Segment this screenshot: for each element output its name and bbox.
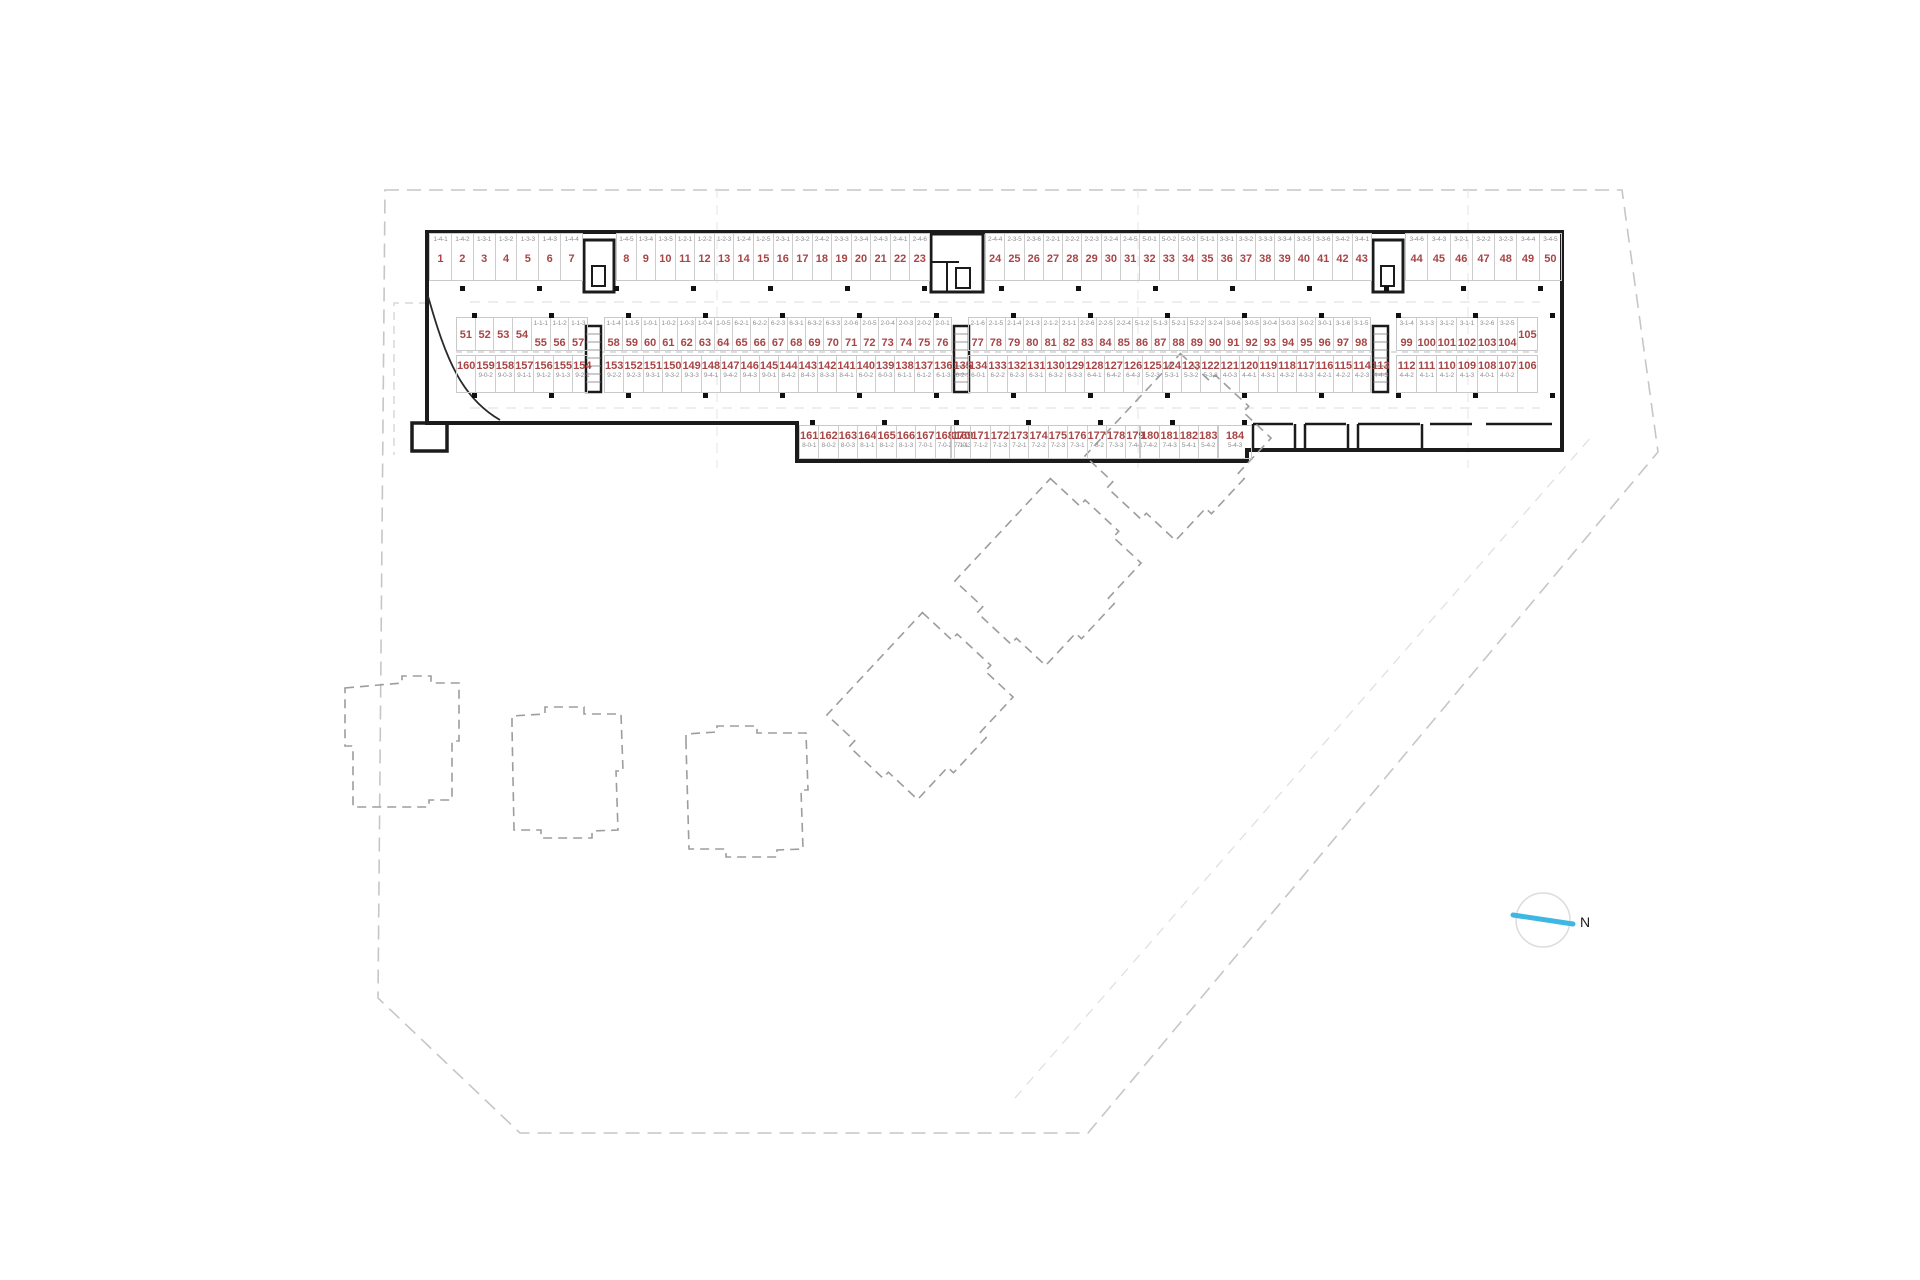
stall-code: 2-0-3 xyxy=(899,320,913,328)
parking-stall: 6-2-367 xyxy=(768,318,786,350)
parking-stall: 2-3-116 xyxy=(773,234,793,280)
parking-stall: 6-3-168 xyxy=(787,318,805,350)
future-building-5 xyxy=(949,473,1152,677)
stall-number: 95 xyxy=(1300,337,1312,349)
stall-code: 2-0-1 xyxy=(935,320,949,328)
parking-stall: 1747-2-2 xyxy=(1028,426,1047,458)
parking-stall: 2-2-683 xyxy=(1078,318,1096,350)
stall-code: 1-3-3 xyxy=(521,236,535,244)
stall-number: 178 xyxy=(1107,430,1125,442)
stall-number: 114 xyxy=(1353,360,1371,372)
stall-number: 112 xyxy=(1398,360,1416,372)
stall-code: 8-1-2 xyxy=(880,442,894,450)
parking-stall: 5-1-387 xyxy=(1151,318,1169,350)
row_top-segment: 1-4-111-4-221-3-131-3-241-3-351-4-361-4-… xyxy=(429,233,583,281)
stall-code: 8-1-1 xyxy=(860,442,874,450)
stall-code: 5-4-1 xyxy=(1182,442,1196,450)
stall-code: 6-2-2 xyxy=(753,320,767,328)
row_bottom-segment: 1807-4-21817-4-31825-4-11835-4-2 xyxy=(1140,425,1218,459)
stall-code: 5-0-3 xyxy=(1181,236,1195,244)
parking-stall: 1469-4-3 xyxy=(740,356,759,392)
stall-number: 76 xyxy=(936,337,948,349)
parking-stall: 2-3-626 xyxy=(1024,234,1043,280)
parking-stall: 1529-2-3 xyxy=(623,356,642,392)
stall-code: 9-2-3 xyxy=(626,372,640,380)
stall-number: 94 xyxy=(1282,337,1294,349)
parking-stall: 2-3-525 xyxy=(1004,234,1023,280)
stall-code: 5-1-1 xyxy=(1200,236,1214,244)
parking-stall: 1164-2-1 xyxy=(1315,356,1334,392)
parking-stall: 1114-1-1 xyxy=(1416,356,1436,392)
stall-number: 68 xyxy=(790,337,802,349)
stall-number: 34 xyxy=(1182,253,1194,265)
stall-number: 150 xyxy=(663,360,681,372)
stall-number: 48 xyxy=(1500,253,1512,265)
stall-number: 5 xyxy=(525,253,531,265)
column-marker xyxy=(1088,393,1093,398)
stall-code: 3-3-4 xyxy=(1278,236,1292,244)
parking-stall: 1376-1-2 xyxy=(914,356,933,392)
stall-number: 22 xyxy=(894,253,906,265)
stall-code: 1-1-1 xyxy=(534,320,548,328)
stall-code: 1-2-2 xyxy=(697,236,711,244)
stall-number: 1 xyxy=(437,253,443,265)
stall-code: 9-4-1 xyxy=(704,372,718,380)
stall-number: 171 xyxy=(971,430,989,442)
stall-code: 3-2-2 xyxy=(1476,236,1490,244)
row_lower_middle-segment: 1601599-0-21589-0-31579-1-11569-1-21559-… xyxy=(456,355,588,393)
stall-code: 3-0-4 xyxy=(1263,320,1277,328)
parking-stall: 1845-4-3 xyxy=(1219,426,1251,458)
parking-stall: 1-4-11 xyxy=(430,234,451,280)
stall-number: 66 xyxy=(754,337,766,349)
stall-number: 155 xyxy=(554,360,572,372)
stall-number: 35 xyxy=(1201,253,1213,265)
parking-stall: 1428-3-3 xyxy=(817,356,836,392)
stall-code: 1-1-2 xyxy=(552,320,566,328)
stall-code: 3-2-1 xyxy=(1454,236,1468,244)
stall-number: 117 xyxy=(1297,360,1315,372)
stall-code: 2-1-2 xyxy=(1044,320,1058,328)
parking-stall: 2-1-380 xyxy=(1023,318,1041,350)
parking-stall: 2-1-182 xyxy=(1059,318,1077,350)
column-marker xyxy=(1473,393,1478,398)
stall-number: 123 xyxy=(1182,360,1200,372)
parking-stall: 1124-4-2 xyxy=(1397,356,1416,392)
stall-number: 14 xyxy=(738,253,750,265)
column-marker xyxy=(857,393,862,398)
stall-number: 132 xyxy=(1008,360,1026,372)
stall-code: 9-4-3 xyxy=(743,372,757,380)
parking-stall: 1-1-559 xyxy=(622,318,640,350)
stall-code: 3-2-3 xyxy=(1499,236,1513,244)
stall-code: 6-3-2 xyxy=(1049,372,1063,380)
column-marker xyxy=(768,286,773,291)
stall-number: 52 xyxy=(478,329,490,341)
column-marker xyxy=(1165,393,1170,398)
column-marker xyxy=(780,313,785,318)
stall-number: 49 xyxy=(1522,253,1534,265)
stall-code: 1-1-5 xyxy=(625,320,639,328)
stall-number: 146 xyxy=(741,360,759,372)
stall-number: 84 xyxy=(1099,337,1111,349)
column-marker xyxy=(1242,393,1247,398)
parking-stall: 3-2-348 xyxy=(1494,234,1516,280)
parking-stall: 2-4-321 xyxy=(870,234,890,280)
stall-code: 2-4-5 xyxy=(1123,236,1137,244)
stall-number: 93 xyxy=(1264,337,1276,349)
parking-stall: 1346-0-1 xyxy=(969,356,987,392)
column-marker xyxy=(1396,313,1401,318)
stall-code: 2-0-2 xyxy=(917,320,931,328)
stall-code: 1-1-3 xyxy=(571,320,585,328)
column-marker xyxy=(1319,313,1324,318)
stall-code: 3-0-5 xyxy=(1245,320,1259,328)
future-building-2 xyxy=(512,707,623,838)
column-marker xyxy=(845,286,850,291)
stall-code: 1-3-2 xyxy=(499,236,513,244)
parking-stall: 1549-2-1 xyxy=(572,356,591,392)
stall-number: 180 xyxy=(1141,430,1159,442)
setback-line xyxy=(1015,436,1592,1098)
parking-stall: 1326-2-3 xyxy=(1007,356,1026,392)
parking-stall: 1825-4-1 xyxy=(1179,426,1198,458)
stall-number: 144 xyxy=(779,360,797,372)
parking-stall: 5-1-135 xyxy=(1197,234,1216,280)
parking-stall: 2-2-584 xyxy=(1096,318,1114,350)
parking-stall: 1-4-22 xyxy=(451,234,473,280)
column-marker xyxy=(460,286,465,291)
column-marker xyxy=(537,286,542,291)
stall-number: 51 xyxy=(460,329,472,341)
stall-number: 147 xyxy=(721,360,739,372)
stall-number: 87 xyxy=(1154,337,1166,349)
stall-code: 2-4-2 xyxy=(815,236,829,244)
stall-number: 163 xyxy=(839,430,857,442)
stall-code: 4-0-2 xyxy=(1500,372,1514,380)
parking-stall: 1204-4-1 xyxy=(1239,356,1258,392)
parking-stall: 2-2-329 xyxy=(1081,234,1100,280)
parking-stall: 1336-2-2 xyxy=(987,356,1006,392)
parking-stall: 3-1-3100 xyxy=(1416,318,1436,350)
stall-number: 20 xyxy=(855,253,867,265)
stall-number: 177 xyxy=(1088,430,1106,442)
parking-stall: 1084-0-1 xyxy=(1477,356,1497,392)
future-building-4 xyxy=(821,607,1024,811)
stall-code: 7-2-1 xyxy=(1012,442,1026,450)
column-marker xyxy=(1550,393,1555,398)
stall-number: 130 xyxy=(1046,360,1064,372)
stall-number: 118 xyxy=(1278,360,1296,372)
parking-stall: 3-0-691 xyxy=(1224,318,1242,350)
stall-code: 3-2-6 xyxy=(1480,320,1494,328)
column-marker xyxy=(999,286,1004,291)
stall-number: 83 xyxy=(1081,337,1093,349)
column-marker xyxy=(922,286,927,291)
stall-code: 8-3-3 xyxy=(820,372,834,380)
parking-stall: 3-4-345 xyxy=(1427,234,1449,280)
parking-stall: 1569-1-2 xyxy=(533,356,552,392)
parking-stall: 5-2-188 xyxy=(1169,318,1187,350)
stall-code: 3-3-2 xyxy=(1239,236,1253,244)
stall-code: 7-3-3 xyxy=(1109,442,1123,450)
stall-number: 149 xyxy=(682,360,700,372)
stall-number: 134 xyxy=(969,360,987,372)
column-marker xyxy=(1165,313,1170,318)
parking-stall: 3-1-1102 xyxy=(1456,318,1476,350)
stall-code: 3-3-5 xyxy=(1297,236,1311,244)
stall-number: 98 xyxy=(1355,337,1367,349)
column-marker xyxy=(1230,286,1235,291)
stall-number: 15 xyxy=(757,253,769,265)
stall-code: 3-0-3 xyxy=(1281,320,1295,328)
stall-code: 9-1-1 xyxy=(517,372,531,380)
stall-code: 8-0-3 xyxy=(841,442,855,450)
stall-number: 67 xyxy=(772,337,784,349)
stall-code: 3-1-6 xyxy=(1336,320,1350,328)
parking-stall: 106 xyxy=(1517,356,1537,392)
stall-number: 102 xyxy=(1458,337,1476,349)
parking-stall: 1-0-564 xyxy=(714,318,732,350)
parking-stall: 1074-0-2 xyxy=(1497,356,1517,392)
parking-stall: 1-3-13 xyxy=(473,234,495,280)
parking-stall: 1707-1-1 xyxy=(952,426,970,458)
stall-code: 2-2-4 xyxy=(1104,236,1118,244)
stall-code: 8-4-2 xyxy=(781,372,795,380)
stall-number: 3 xyxy=(481,253,487,265)
parking-stall: 1225-3-3 xyxy=(1200,356,1219,392)
stall-code: 2-4-3 xyxy=(874,236,888,244)
parking-stall: 1579-1-1 xyxy=(514,356,533,392)
stall-number: 110 xyxy=(1438,360,1456,372)
column-marker xyxy=(549,393,554,398)
stall-number: 116 xyxy=(1316,360,1334,372)
stall-number: 138 xyxy=(895,360,913,372)
parking-stall: 1-2-515 xyxy=(753,234,773,280)
parking-stall: 1-3-49 xyxy=(636,234,656,280)
column-marker xyxy=(472,313,477,318)
stall-number: 12 xyxy=(698,253,710,265)
stall-code: 6-3-2 xyxy=(807,320,821,328)
north-label: N xyxy=(1580,914,1590,930)
stall-number: 115 xyxy=(1334,360,1352,372)
stall-number: 77 xyxy=(972,337,984,349)
parking-stall: 1737-2-1 xyxy=(1009,426,1028,458)
parking-stall: 1316-3-1 xyxy=(1026,356,1045,392)
parking-stall: 2-2-485 xyxy=(1114,318,1132,350)
stall-code: 2-3-6 xyxy=(1027,236,1041,244)
parking-stall: 1757-2-3 xyxy=(1048,426,1067,458)
stall-code: 6-4-2 xyxy=(1107,372,1121,380)
stall-code: 6-1-1 xyxy=(897,372,911,380)
stall-code: 9-3-1 xyxy=(646,372,660,380)
parking-stall: 1104-1-2 xyxy=(1436,356,1456,392)
stall-code: 2-1-4 xyxy=(1007,320,1021,328)
stall-number: 16 xyxy=(777,253,789,265)
stall-number: 57 xyxy=(572,337,584,349)
stall-code: 2-2-2 xyxy=(1065,236,1079,244)
column-marker xyxy=(1384,286,1389,291)
stall-number: 64 xyxy=(717,337,729,349)
stall-code: 5-2-3 xyxy=(1145,372,1159,380)
column-marker xyxy=(1098,420,1103,425)
stall-number: 27 xyxy=(1047,253,1059,265)
parking-stall: 1668-1-3 xyxy=(896,426,915,458)
site-plan-linework: N xyxy=(0,0,1920,1280)
parking-stall: 1134-4-3 xyxy=(1371,356,1390,392)
parking-stall: 3-2-146 xyxy=(1450,234,1472,280)
parking-stall: 1245-3-1 xyxy=(1162,356,1181,392)
stall-number: 69 xyxy=(808,337,820,349)
parking-stall: 3-4-644 xyxy=(1406,234,1427,280)
stall-number: 10 xyxy=(659,253,671,265)
stall-number: 158 xyxy=(496,360,514,372)
stall-number: 79 xyxy=(1008,337,1020,349)
parking-stall: 1628-0-2 xyxy=(818,426,837,458)
stall-number: 39 xyxy=(1278,253,1290,265)
parking-stall: 1266-4-3 xyxy=(1123,356,1142,392)
stall-number: 82 xyxy=(1063,337,1075,349)
parking-stall: 1406-0-2 xyxy=(856,356,875,392)
stall-number: 139 xyxy=(876,360,894,372)
stall-number: 167 xyxy=(916,430,934,442)
parking-stall: 1-0-160 xyxy=(641,318,659,350)
column-marker xyxy=(1461,286,1466,291)
stall-code: 7-0-1 xyxy=(918,442,932,450)
parking-stall: 6-3-269 xyxy=(805,318,823,350)
stall-code: 3-4-6 xyxy=(1410,236,1424,244)
stall-number: 173 xyxy=(1010,430,1028,442)
column-marker xyxy=(1319,393,1324,398)
stall-code: 2-1-6 xyxy=(971,320,985,328)
stall-code: 6-3-1 xyxy=(789,320,803,328)
parking-stall: 2-2-127 xyxy=(1043,234,1062,280)
stall-code: 3-0-1 xyxy=(1318,320,1332,328)
stall-number: 45 xyxy=(1433,253,1445,265)
stall-code: 1-0-2 xyxy=(661,320,675,328)
parking-stall: 1-2-212 xyxy=(694,234,714,280)
stall-code: 1-1-4 xyxy=(607,320,621,328)
parking-stall: 1-4-58 xyxy=(617,234,636,280)
row_top-segment: 1-4-581-3-491-3-5101-2-1111-2-2121-2-313… xyxy=(616,233,930,281)
stall-number: 181 xyxy=(1160,430,1178,442)
stall-code: 8-4-1 xyxy=(839,372,853,380)
stall-code: 1-2-3 xyxy=(717,236,731,244)
column-marker xyxy=(1242,420,1247,425)
stall-code: 5-4-3 xyxy=(1228,442,1242,450)
parking-stall: 1174-3-3 xyxy=(1296,356,1315,392)
column-marker xyxy=(1153,286,1158,291)
stall-number: 73 xyxy=(881,337,893,349)
stall-number: 122 xyxy=(1201,360,1219,372)
stall-number: 153 xyxy=(605,360,623,372)
stall-code: 1-4-3 xyxy=(543,236,557,244)
parking-stall: 2-4-122 xyxy=(890,234,910,280)
row_top-segment: 2-4-4242-3-5252-3-6262-2-1272-2-2282-2-3… xyxy=(985,233,1372,281)
parking-stall: 1-1-357 xyxy=(568,318,587,350)
parking-stall: 1767-3-1 xyxy=(1067,426,1086,458)
stall-code: 2-2-1 xyxy=(1046,236,1060,244)
stall-code: 2-4-6 xyxy=(913,236,927,244)
column-marker xyxy=(1170,420,1175,425)
parking-stall: 2-1-677 xyxy=(969,318,986,350)
stall-code: 7-1-3 xyxy=(993,442,1007,450)
stall-code: 3-0-6 xyxy=(1226,320,1240,328)
stall-number: 26 xyxy=(1028,253,1040,265)
column-marker xyxy=(954,420,959,425)
stall-number: 62 xyxy=(681,337,693,349)
stall-code: 1-0-3 xyxy=(680,320,694,328)
stall-number: 32 xyxy=(1143,253,1155,265)
stall-code: 4-4-1 xyxy=(1242,372,1256,380)
stall-code: 4-3-3 xyxy=(1299,372,1313,380)
parking-stall: 3-0-196 xyxy=(1315,318,1333,350)
stall-code: 3-1-5 xyxy=(1354,320,1368,328)
stall-code: 3-1-4 xyxy=(1399,320,1413,328)
stall-code: 2-3-3 xyxy=(834,236,848,244)
stall-code: 9-3-2 xyxy=(665,372,679,380)
parking-stall: 3-3-136 xyxy=(1217,234,1236,280)
parking-stall: 1777-3-2 xyxy=(1087,426,1106,458)
parking-stall: 1519-3-1 xyxy=(643,356,662,392)
parking-stall: 3-1-697 xyxy=(1333,318,1351,350)
stall-code: 1-0-1 xyxy=(643,320,657,328)
stall-code: 6-2-3 xyxy=(771,320,785,328)
stall-code: 9-3-3 xyxy=(685,372,699,380)
stall-number: 145 xyxy=(760,360,778,372)
stall-code: 1-3-4 xyxy=(639,236,653,244)
column-marker xyxy=(703,393,708,398)
stall-code: 5-2-2 xyxy=(1190,320,1204,328)
stall-number: 160 xyxy=(457,360,475,372)
stall-number: 124 xyxy=(1163,360,1181,372)
parking-stall: 3-3-237 xyxy=(1236,234,1255,280)
stall-code: 8-1-3 xyxy=(899,442,913,450)
stall-code: 8-4-3 xyxy=(801,372,815,380)
row_lower_middle-segment: 1124-4-21114-1-11104-1-21094-1-31084-0-1… xyxy=(1396,355,1538,393)
stall-number: 37 xyxy=(1240,253,1252,265)
parking-stall: 6-2-165 xyxy=(732,318,750,350)
column-marker xyxy=(1242,313,1247,318)
stall-code: 2-2-3 xyxy=(1085,236,1099,244)
stall-number: 89 xyxy=(1191,337,1203,349)
row_bottom-segment: 1707-1-11717-1-21727-1-31737-2-11747-2-2… xyxy=(951,425,1140,459)
parking-stall: 1638-0-3 xyxy=(838,426,857,458)
stall-code: 4-3-2 xyxy=(1280,372,1294,380)
row_upper_middle-segment: 2-1-6772-1-5782-1-4792-1-3802-1-2812-1-1… xyxy=(968,317,1371,351)
stall-code: 7-3-2 xyxy=(1090,442,1104,450)
row_upper_middle-segment: 515253541-1-1551-1-2561-1-357 xyxy=(456,317,588,351)
column-marker xyxy=(780,393,785,398)
parking-stall: 3-4-449 xyxy=(1516,234,1538,280)
row_lower_middle-segment: 1346-0-11336-2-21326-2-31316-3-11306-3-2… xyxy=(968,355,1371,393)
stall-number: 113 xyxy=(1372,360,1390,372)
stall-number: 161 xyxy=(800,430,818,442)
north-compass: N xyxy=(1513,893,1590,947)
stall-code: 4-1-3 xyxy=(1460,372,1474,380)
parking-stall: 1835-4-2 xyxy=(1198,426,1217,458)
parking-stall: 3-3-338 xyxy=(1255,234,1274,280)
stall-code: 6-1-3 xyxy=(936,372,950,380)
stall-code: 1-3-1 xyxy=(477,236,491,244)
stall-number: 44 xyxy=(1411,253,1423,265)
stall-number: 133 xyxy=(988,360,1006,372)
stall-number: 182 xyxy=(1180,430,1198,442)
stall-code: 7-2-3 xyxy=(1051,442,1065,450)
column-marker xyxy=(549,313,554,318)
stall-number: 165 xyxy=(877,430,895,442)
stall-code: 6-1-2 xyxy=(917,372,931,380)
